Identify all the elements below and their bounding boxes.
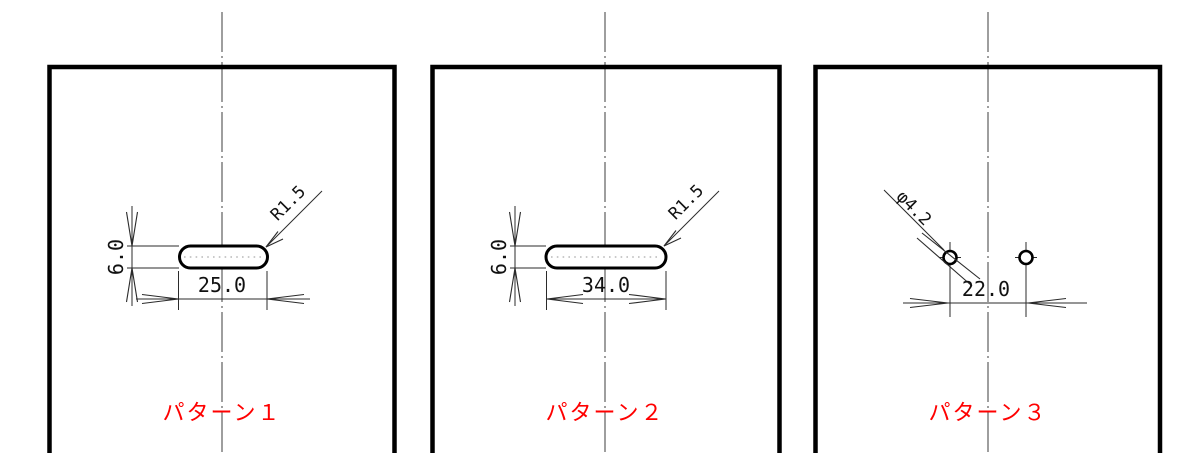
panel-pattern-1: 6.0 25.0 R1.5 パターン１: [50, 12, 395, 453]
panel-pattern-2: 6.0 34.0 R1.5 パターン２: [433, 12, 780, 453]
panel-1-slot-height-value: 6.0: [104, 239, 128, 275]
panel-3-diameter-leader: φ4.2: [884, 187, 980, 286]
panel-3-hole-left: [939, 242, 961, 317]
panel-3-hole-diameter-value: φ4.2: [892, 187, 935, 230]
drawing-canvas: 6.0 25.0 R1.5 パターン１: [0, 0, 1200, 453]
panel-2-radius-leader: R1.5: [664, 181, 719, 246]
panel-1-slot-width-value: 25.0: [198, 273, 246, 297]
drawing-svg: 6.0 25.0 R1.5 パターン１: [0, 0, 1200, 453]
panel-3-dim-hole-pitch: 22.0: [903, 277, 1087, 308]
panel-1-dim-slot-height: 6.0: [104, 206, 179, 306]
panel-1-radius-leader: R1.5: [266, 182, 322, 247]
panel-3-hole-right: [1015, 242, 1037, 317]
panel-2-label: パターン２: [546, 401, 665, 426]
panel-1-corner-radius-value: R1.5: [267, 182, 310, 225]
panel-2-slot-height-value: 6.0: [487, 239, 511, 275]
panel-3-label: パターン３: [929, 401, 1048, 426]
panel-1-dim-slot-width: 25.0: [136, 271, 310, 310]
panel-2-slot-width-value: 34.0: [582, 273, 630, 297]
panel-pattern-3: φ4.2 22.0 パターン３: [816, 12, 1161, 453]
panel-3-hole-pitch-value: 22.0: [962, 277, 1010, 301]
panel-1-label: パターン１: [163, 401, 282, 426]
panel-2-corner-radius-value: R1.5: [665, 181, 708, 224]
panel-2-dim-slot-height: 6.0: [487, 206, 546, 306]
panel-2-dim-slot-width: 34.0: [547, 271, 667, 310]
